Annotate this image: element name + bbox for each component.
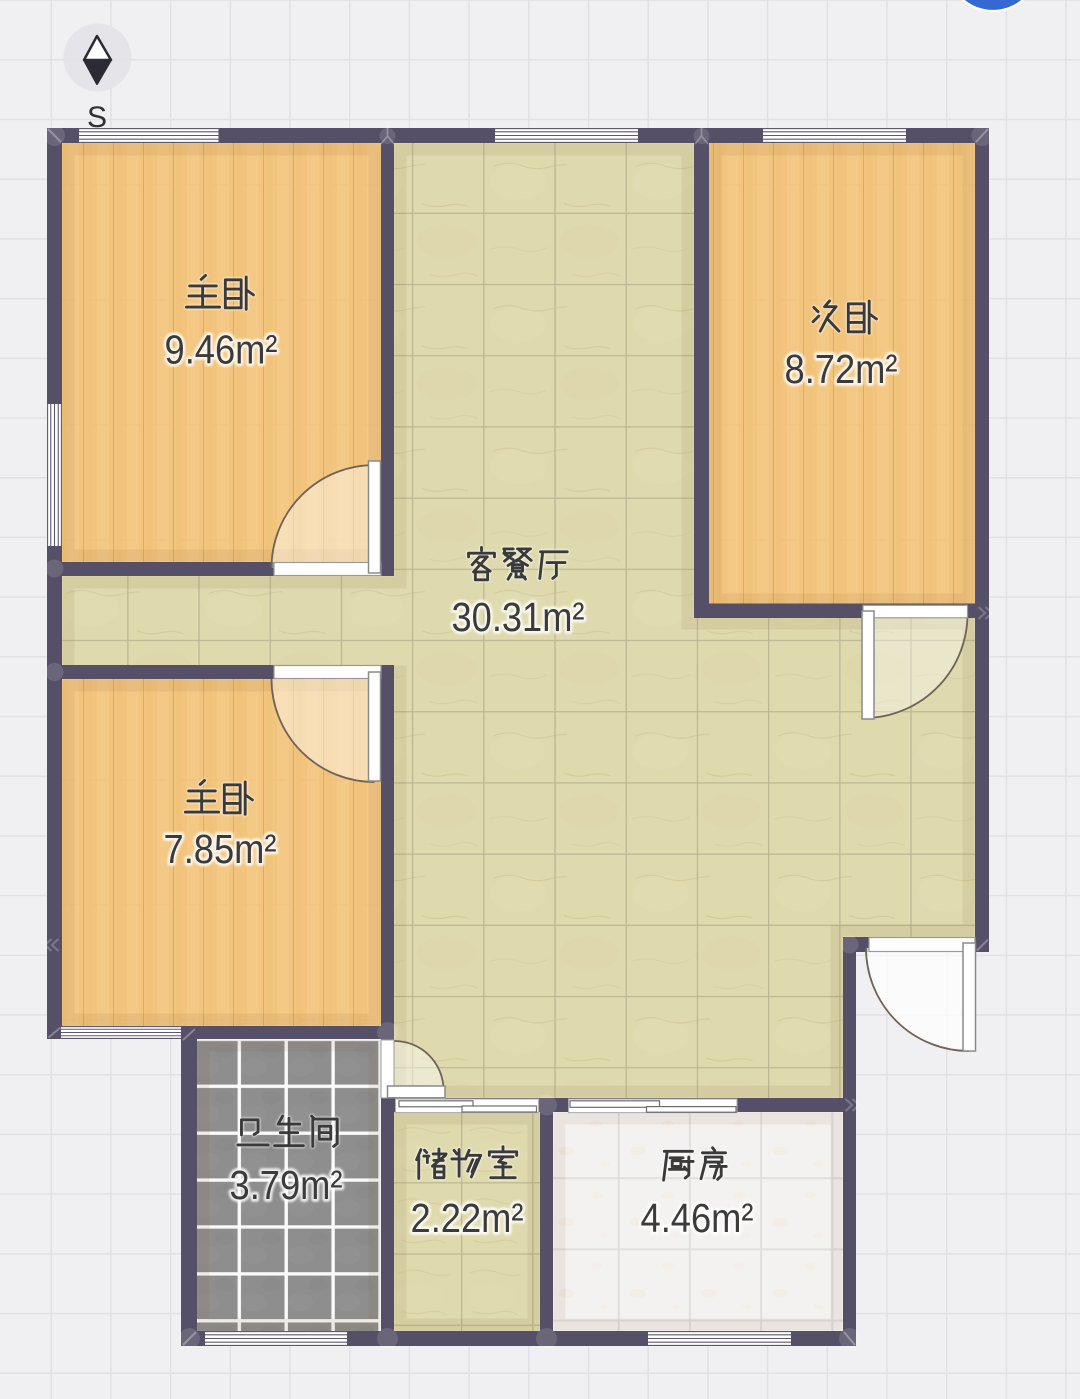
svg-text:9.46m²: 9.46m² [165, 327, 278, 373]
svg-text:8.72m²: 8.72m² [785, 346, 898, 392]
svg-text:30.31m²: 30.31m² [452, 594, 585, 640]
svg-text:3.79m²: 3.79m² [230, 1162, 343, 1208]
svg-text:4.46m²: 4.46m² [641, 1195, 754, 1241]
svg-text:2.22m²: 2.22m² [411, 1195, 524, 1241]
svg-text:7.85m²: 7.85m² [164, 826, 277, 872]
